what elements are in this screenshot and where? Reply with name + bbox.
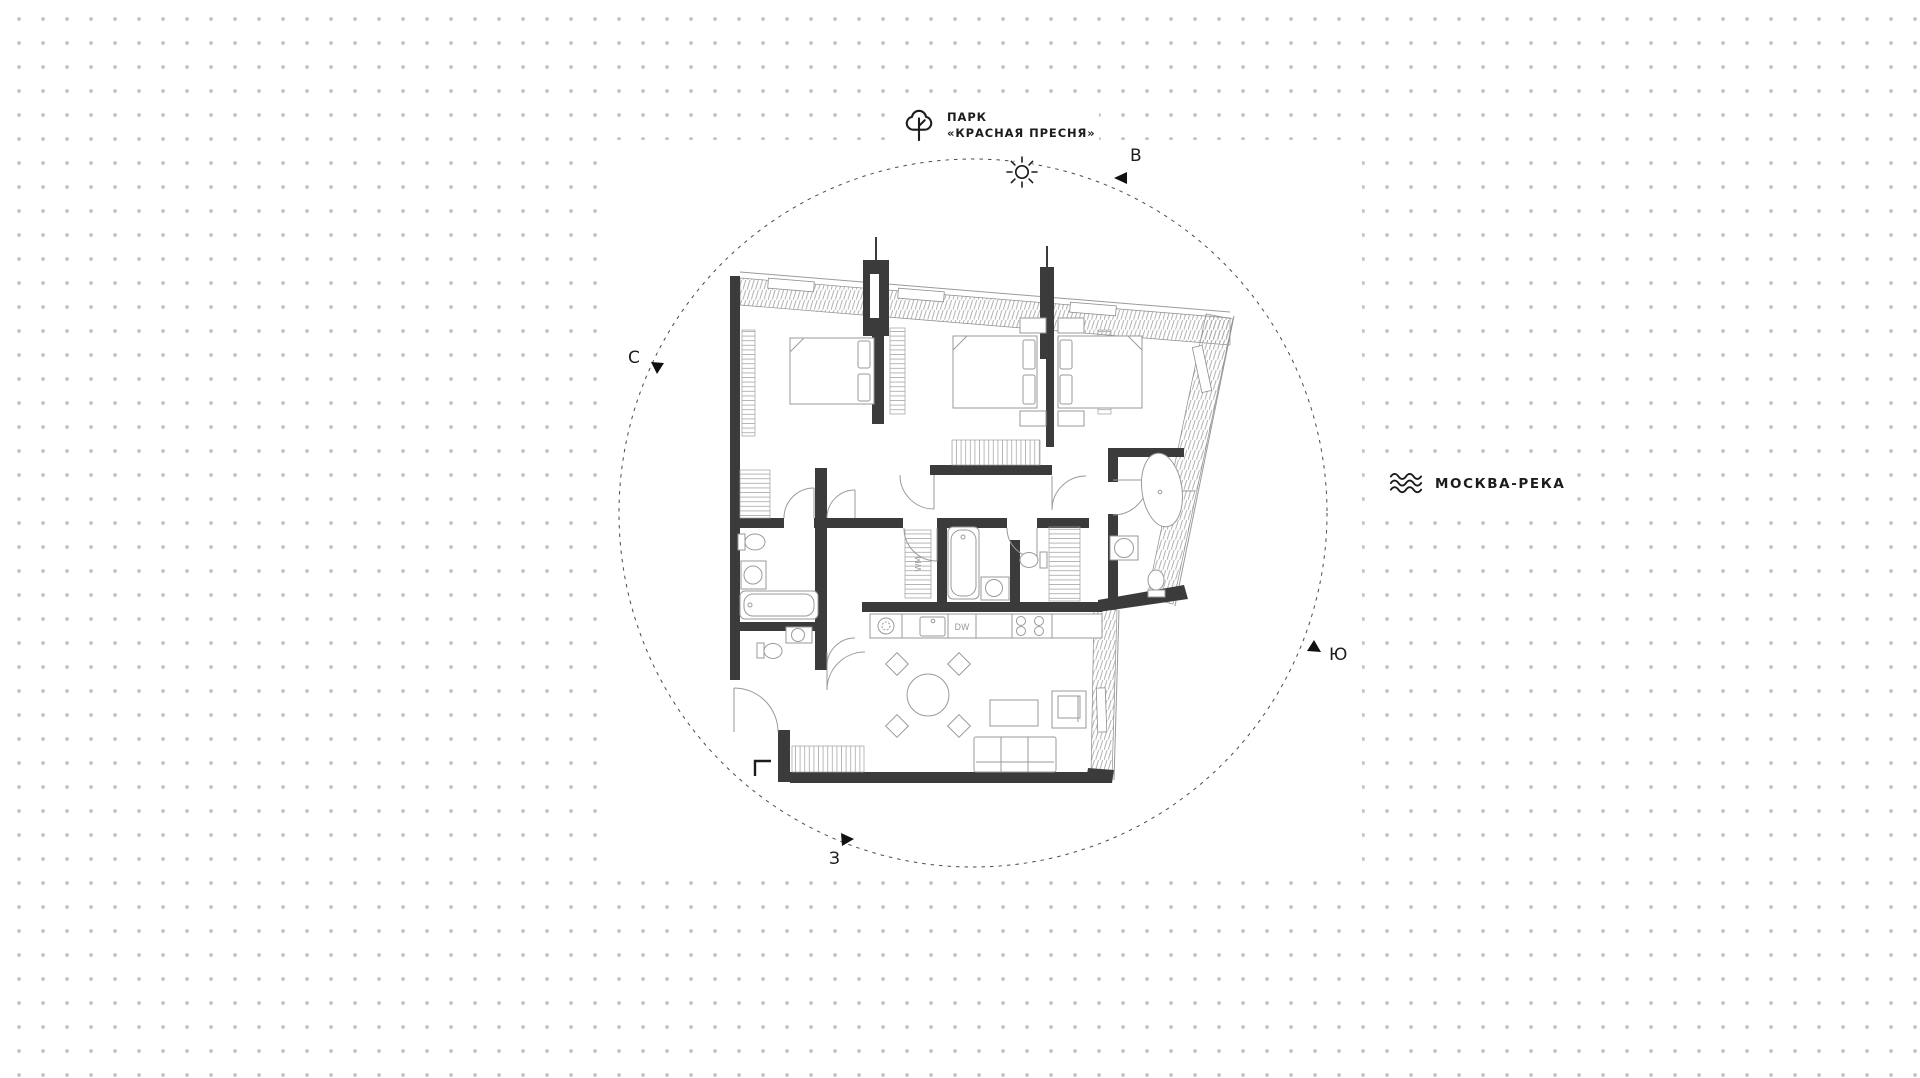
dishwasher-label: DW <box>955 623 971 633</box>
toilet <box>738 534 765 550</box>
compass-north-label: С <box>628 350 640 367</box>
sink <box>1110 536 1138 560</box>
park-label: ПАРК «КРАСНАЯ ПРЕСНЯ» <box>902 106 1096 144</box>
tree-icon <box>902 106 936 144</box>
waves-icon <box>1389 472 1423 496</box>
sun-icon <box>1002 152 1042 192</box>
sink <box>786 627 812 643</box>
park-label-line2: «КРАСНАЯ ПРЕСНЯ» <box>947 125 1096 141</box>
bed <box>790 338 874 404</box>
compass-west-label: З <box>829 851 840 868</box>
page: { "canvas": { "dot_color": "#c5c5c5", "w… <box>0 0 1920 1078</box>
sink <box>981 577 1009 600</box>
corner-mark <box>755 761 771 776</box>
river-label-text: МОСКВА-РЕКА <box>1435 476 1565 492</box>
compass-east-label: В <box>1130 148 1142 165</box>
sink <box>741 561 766 589</box>
compass-north-arrow-icon <box>650 361 665 375</box>
toilet <box>1148 570 1165 597</box>
bed <box>953 318 1046 426</box>
park-label-line1: ПАРК <box>947 109 1096 125</box>
dining-table <box>886 653 971 738</box>
vent-icon <box>878 618 894 634</box>
armchair <box>1052 691 1086 728</box>
kitchen-counter <box>870 614 1102 638</box>
coffee-table <box>990 700 1038 726</box>
orientation-circle <box>619 159 1327 867</box>
washing-machine-label: WM <box>914 556 923 571</box>
bedroom-furniture <box>790 318 1142 426</box>
toilet <box>757 643 782 659</box>
sofa <box>974 737 1056 772</box>
compass-west-arrow-icon <box>840 833 855 848</box>
compass-east-arrow-icon <box>1112 171 1128 185</box>
river-label: МОСКВА-РЕКА <box>1389 472 1565 496</box>
bathtub <box>948 527 979 599</box>
living-furniture <box>886 653 1086 772</box>
sun-marker <box>1002 152 1042 192</box>
bathtub <box>740 591 818 619</box>
kitchen-sink <box>920 617 945 636</box>
compass-south-label: Ю <box>1329 647 1347 664</box>
floor-plan: DW WM <box>600 90 1360 880</box>
compass-south-arrow-icon <box>1306 640 1322 653</box>
toilet <box>1020 552 1047 568</box>
